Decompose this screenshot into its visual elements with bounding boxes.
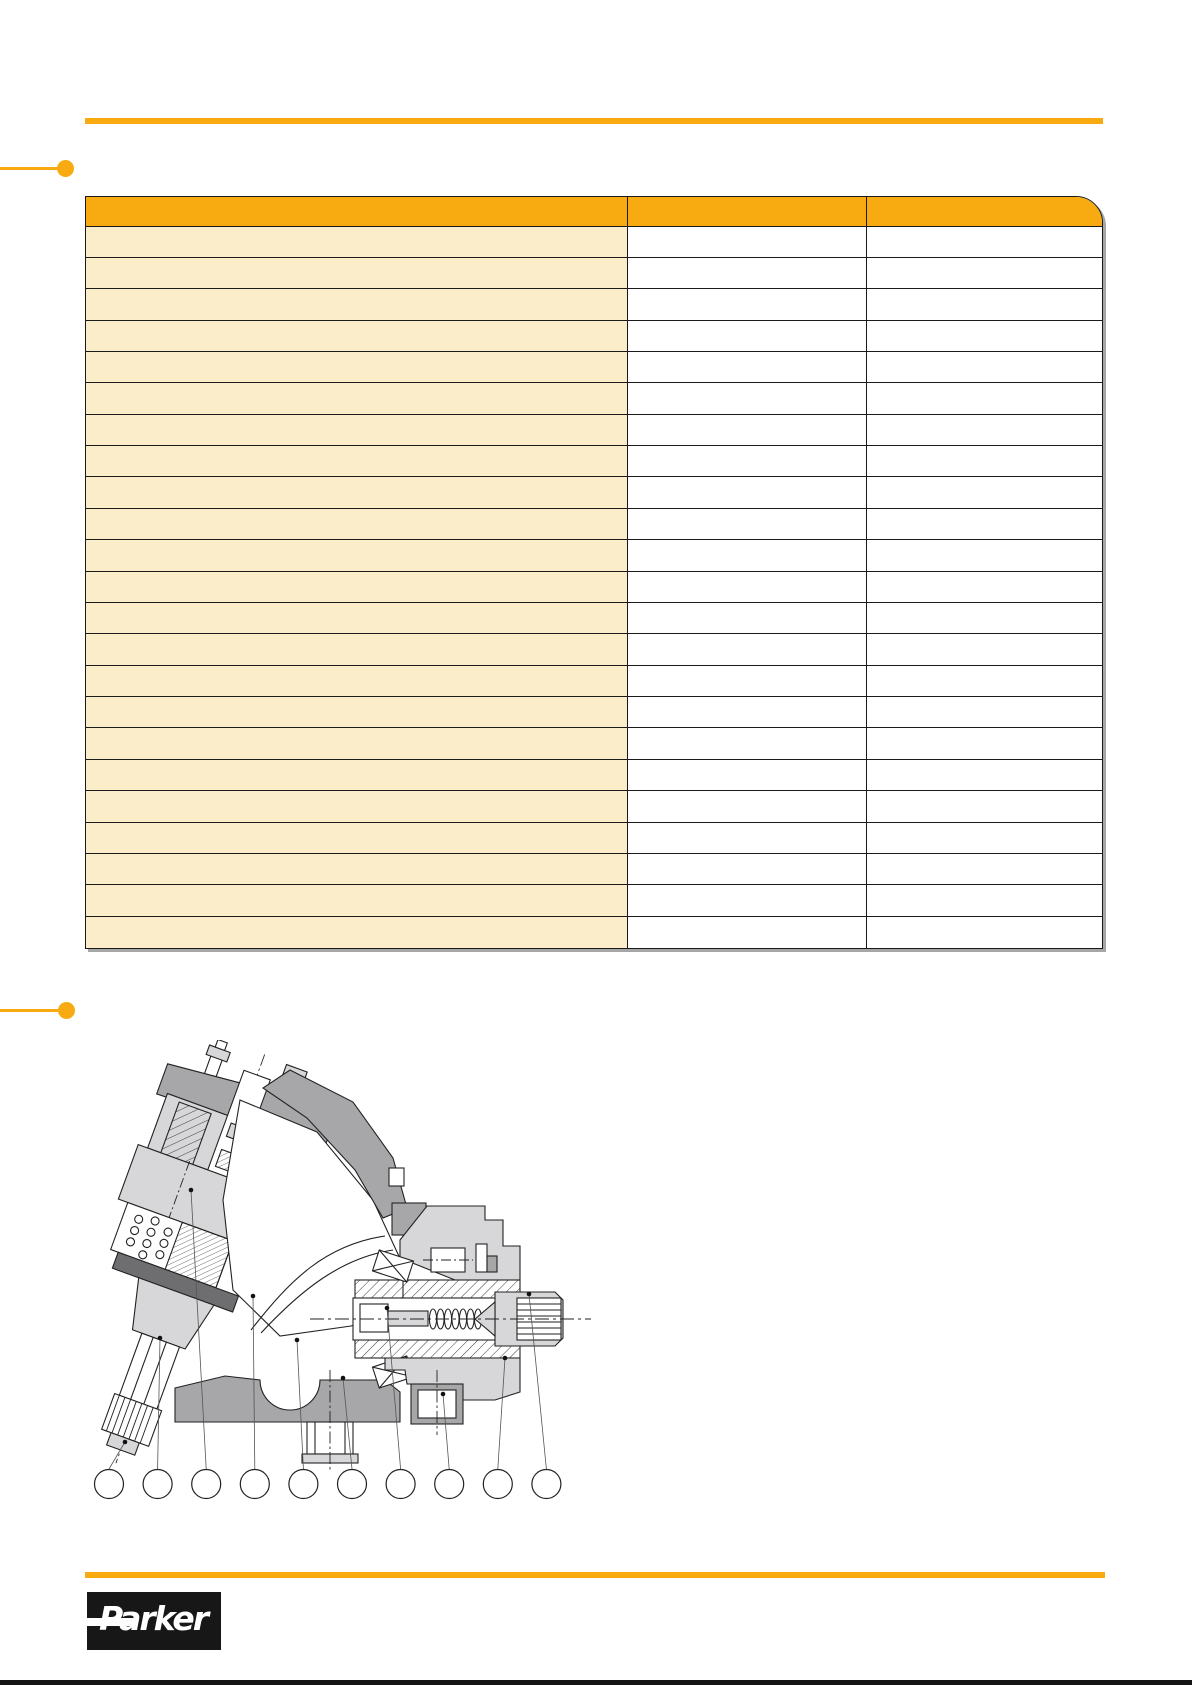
parker-logo: Parker bbox=[87, 1592, 221, 1650]
table-cell bbox=[866, 446, 1102, 477]
table-cell bbox=[866, 634, 1102, 665]
spec-table bbox=[85, 196, 1103, 949]
cross-section-drawing bbox=[55, 1040, 595, 1500]
table-cell bbox=[86, 258, 627, 289]
callout-circle bbox=[532, 1470, 561, 1499]
table-cell bbox=[627, 917, 866, 948]
table-cell bbox=[627, 321, 866, 352]
table-row bbox=[86, 666, 1102, 697]
table-cell bbox=[627, 446, 866, 477]
table-header-cell bbox=[627, 197, 866, 227]
table-header-row bbox=[86, 197, 1102, 227]
table-cell bbox=[627, 572, 866, 603]
table-row bbox=[86, 477, 1102, 508]
table-row bbox=[86, 352, 1102, 383]
table-cell bbox=[86, 540, 627, 571]
table-row bbox=[86, 603, 1102, 634]
table-cell bbox=[86, 760, 627, 791]
callout-circle bbox=[386, 1470, 415, 1499]
page-bottom-rule bbox=[0, 1680, 1192, 1685]
table-row bbox=[86, 289, 1102, 320]
table-cell bbox=[627, 697, 866, 728]
table-cell bbox=[86, 634, 627, 665]
table-cell bbox=[866, 415, 1102, 446]
table-cell bbox=[866, 885, 1102, 916]
page: Parker bbox=[0, 0, 1192, 1685]
table-cell bbox=[627, 509, 866, 540]
table-row bbox=[86, 509, 1102, 540]
table-row bbox=[86, 383, 1102, 414]
top-divider-rule bbox=[85, 118, 1103, 124]
callout-circle bbox=[95, 1470, 124, 1499]
table-cell bbox=[86, 666, 627, 697]
table-cell bbox=[627, 383, 866, 414]
callout-circle bbox=[240, 1470, 269, 1499]
table-cell bbox=[86, 352, 627, 383]
table-header-cell bbox=[86, 197, 627, 227]
table-cell bbox=[627, 540, 866, 571]
table-cell bbox=[866, 572, 1102, 603]
section2-bullet-icon bbox=[58, 1002, 75, 1019]
table-row bbox=[86, 854, 1102, 885]
table-cell bbox=[627, 258, 866, 289]
parker-logo-text: Parker bbox=[99, 1599, 207, 1638]
table-cell bbox=[86, 572, 627, 603]
table-cell bbox=[866, 854, 1102, 885]
table-cell bbox=[866, 509, 1102, 540]
table-cell bbox=[627, 227, 866, 258]
table-cell bbox=[627, 477, 866, 508]
table-cell bbox=[627, 760, 866, 791]
table-cell bbox=[866, 258, 1102, 289]
table-cell bbox=[866, 289, 1102, 320]
table-cell bbox=[627, 823, 866, 854]
table-row bbox=[86, 415, 1102, 446]
table-row bbox=[86, 917, 1102, 948]
callout-circle bbox=[435, 1470, 464, 1499]
table-cell bbox=[627, 289, 866, 320]
table-header-cell bbox=[866, 197, 1102, 227]
table-row bbox=[86, 885, 1102, 916]
table-cell bbox=[86, 697, 627, 728]
table-row bbox=[86, 540, 1102, 571]
table-row bbox=[86, 446, 1102, 477]
table-cell bbox=[627, 603, 866, 634]
table-cell bbox=[866, 227, 1102, 258]
callout-circles bbox=[95, 1470, 561, 1499]
table-cell bbox=[86, 917, 627, 948]
table-cell bbox=[86, 477, 627, 508]
callout-circle bbox=[143, 1470, 172, 1499]
table-cell bbox=[866, 477, 1102, 508]
callout-circle bbox=[192, 1470, 221, 1499]
section2-bullet-line bbox=[0, 1009, 59, 1012]
table-cell bbox=[86, 885, 627, 916]
table-cell bbox=[627, 791, 866, 822]
section1-bullet-icon bbox=[57, 160, 74, 177]
table-cell bbox=[86, 728, 627, 759]
table-row bbox=[86, 728, 1102, 759]
callout-circle bbox=[338, 1470, 367, 1499]
table-cell bbox=[86, 321, 627, 352]
table-row bbox=[86, 697, 1102, 728]
table-cell bbox=[86, 603, 627, 634]
table-cell bbox=[866, 728, 1102, 759]
table-row bbox=[86, 227, 1102, 258]
table-cell bbox=[866, 791, 1102, 822]
table-cell bbox=[86, 227, 627, 258]
table-cell bbox=[866, 697, 1102, 728]
table-cell bbox=[627, 352, 866, 383]
table-cell bbox=[86, 823, 627, 854]
table-row bbox=[86, 572, 1102, 603]
callout-circle bbox=[483, 1470, 512, 1499]
table-cell bbox=[866, 383, 1102, 414]
table-cell bbox=[627, 415, 866, 446]
table-cell bbox=[86, 383, 627, 414]
table-row bbox=[86, 823, 1102, 854]
table-cell bbox=[866, 666, 1102, 697]
table-row bbox=[86, 258, 1102, 289]
table-cell bbox=[866, 823, 1102, 854]
callout-circle bbox=[289, 1470, 318, 1499]
table-cell bbox=[86, 446, 627, 477]
table-cell bbox=[627, 854, 866, 885]
table-cell bbox=[86, 854, 627, 885]
table-cell bbox=[86, 415, 627, 446]
section1-bullet-line bbox=[0, 167, 58, 170]
table-cell bbox=[86, 509, 627, 540]
table-cell bbox=[866, 760, 1102, 791]
table-cell bbox=[866, 321, 1102, 352]
table-cell bbox=[866, 540, 1102, 571]
table-cell bbox=[627, 728, 866, 759]
table-row bbox=[86, 760, 1102, 791]
table-cell bbox=[866, 917, 1102, 948]
table-cell bbox=[866, 352, 1102, 383]
table-cell bbox=[627, 634, 866, 665]
table-row bbox=[86, 634, 1102, 665]
table-cell bbox=[627, 885, 866, 916]
table-cell bbox=[86, 289, 627, 320]
table-cell bbox=[866, 603, 1102, 634]
table-cell bbox=[627, 666, 866, 697]
table-row bbox=[86, 791, 1102, 822]
table-cell bbox=[86, 791, 627, 822]
table-row bbox=[86, 321, 1102, 352]
footer-accent-rule bbox=[85, 1572, 1105, 1578]
